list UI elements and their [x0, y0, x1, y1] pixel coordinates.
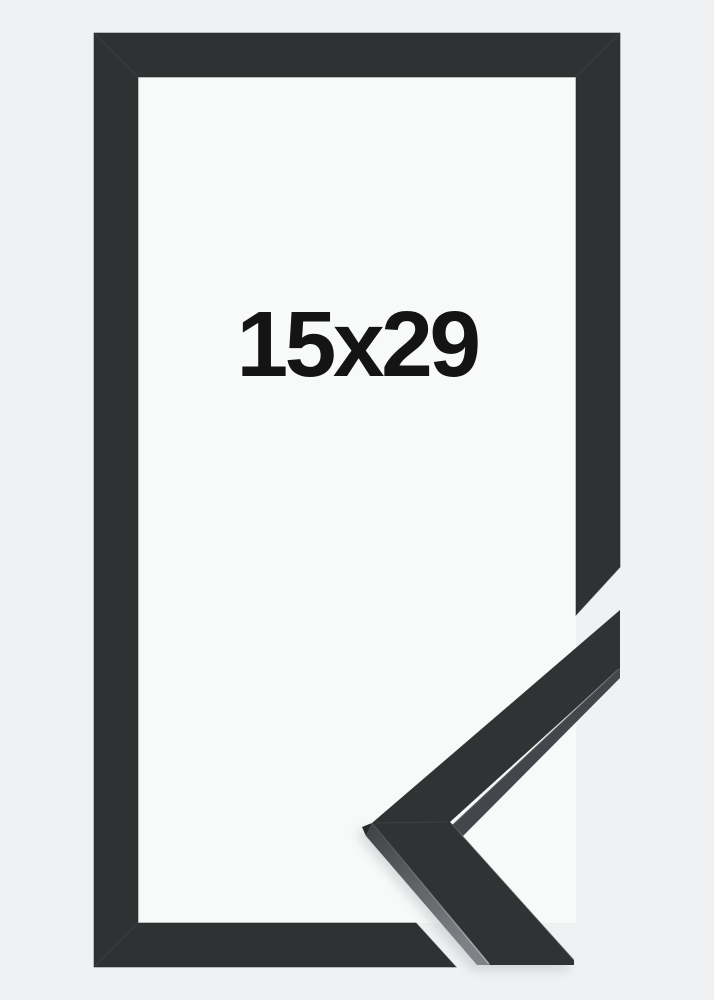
frame-opening	[138, 77, 576, 923]
size-label: 15x29	[236, 292, 478, 396]
frame-graphic: 15x29	[0, 0, 714, 1000]
frame-product-image: 15x29	[0, 0, 714, 1000]
